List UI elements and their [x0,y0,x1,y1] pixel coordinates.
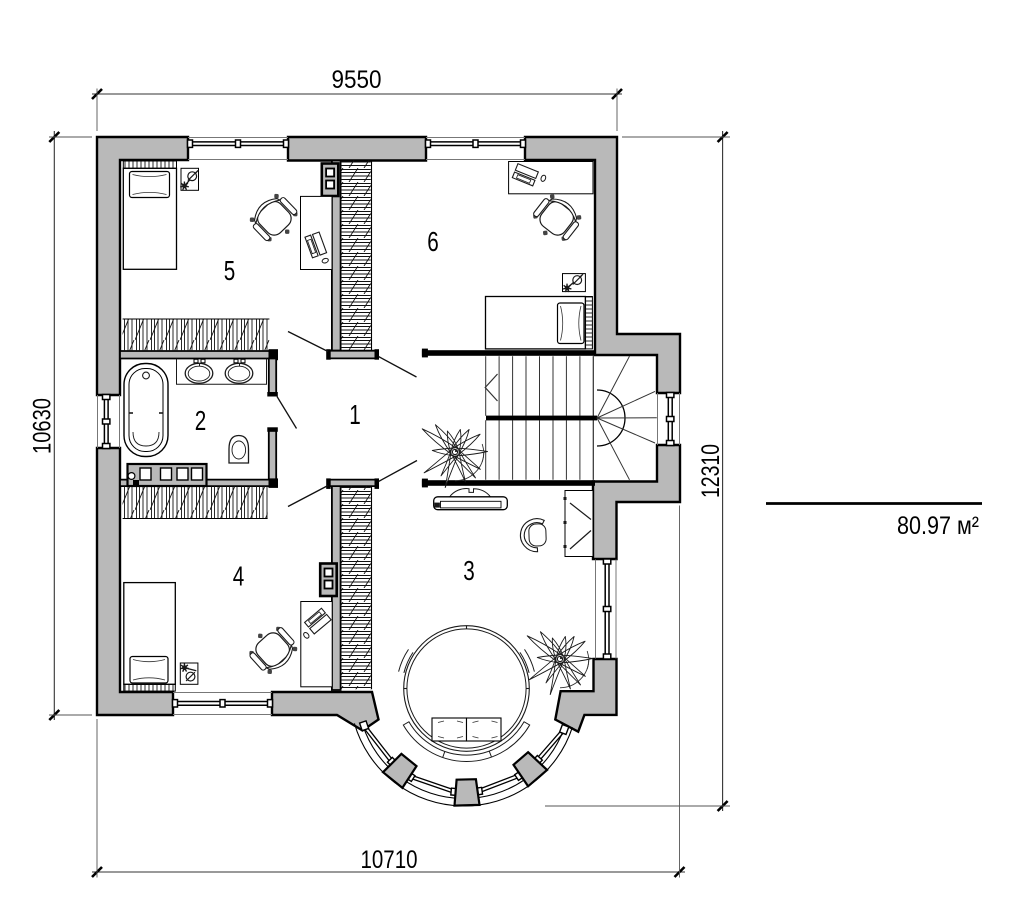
svg-text:5: 5 [224,255,236,286]
svg-text:2: 2 [195,405,207,436]
svg-text:10710: 10710 [361,846,418,874]
svg-text:3: 3 [463,555,475,586]
svg-text:1: 1 [349,399,361,430]
svg-text:6: 6 [427,226,439,257]
svg-text:10630: 10630 [29,398,57,454]
svg-text:12310: 12310 [697,444,725,498]
svg-text:4: 4 [233,561,245,592]
svg-text:9550: 9550 [332,66,382,94]
svg-text:80.97 м²: 80.97 м² [897,512,979,540]
